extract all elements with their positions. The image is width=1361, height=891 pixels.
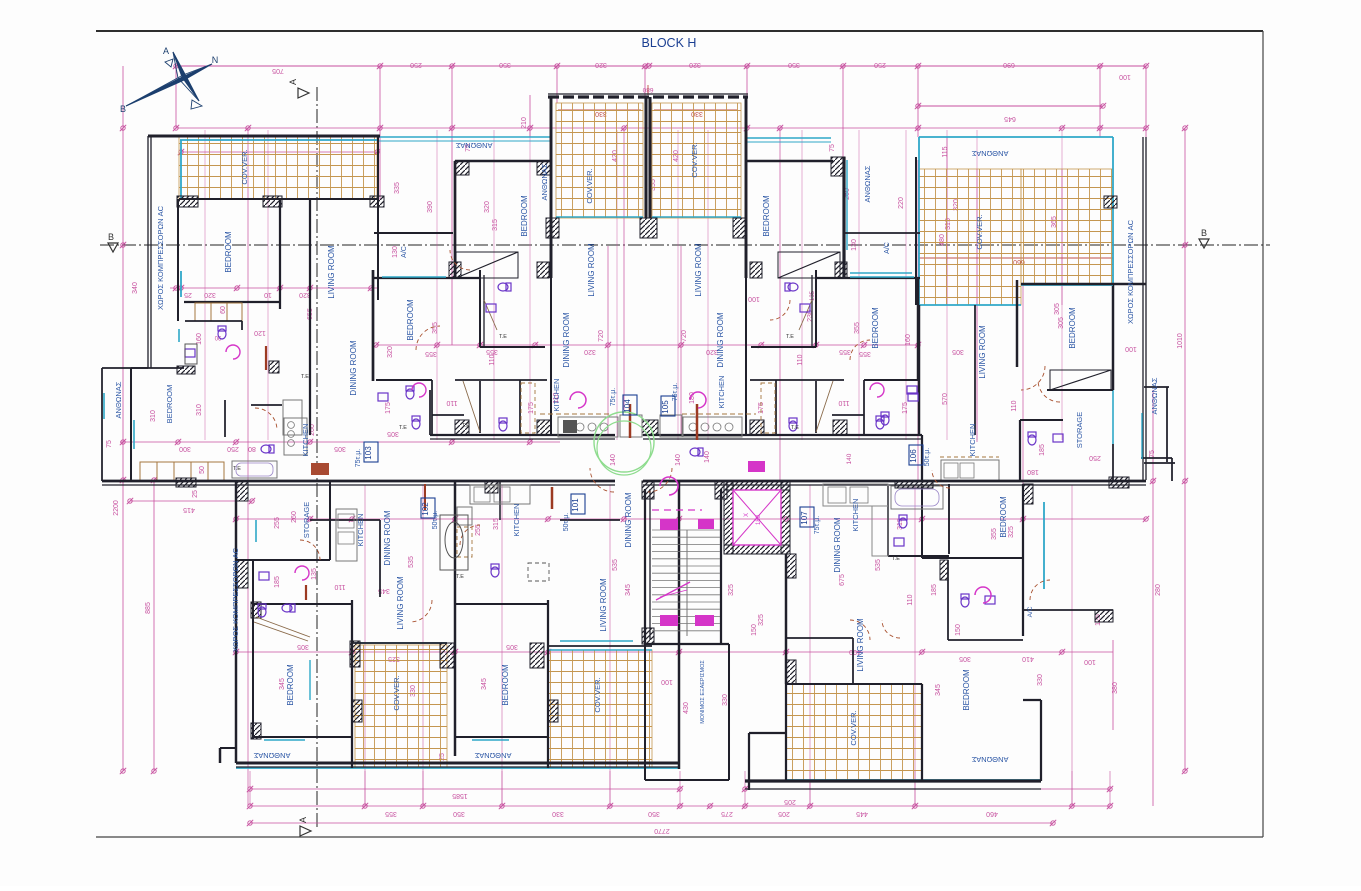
svg-text:300: 300 xyxy=(179,445,191,452)
svg-text:LIVING ROOM: LIVING ROOM xyxy=(327,245,336,299)
svg-text:130: 130 xyxy=(851,239,858,251)
svg-text:LIVING ROOM: LIVING ROOM xyxy=(978,325,987,379)
svg-text:570: 570 xyxy=(942,393,949,405)
svg-text:ΜΟΝΙΜΟΣ ΕΞΑΕΡΙΣΜΟΣ: ΜΟΝΙΜΟΣ ΕΞΑΕΡΙΣΜΟΣ xyxy=(700,660,706,724)
svg-text:T.E: T.E xyxy=(791,425,799,431)
svg-text:107: 107 xyxy=(800,511,809,525)
svg-text:535: 535 xyxy=(875,559,882,571)
svg-text:BEDROOM: BEDROOM xyxy=(520,195,529,237)
svg-text:LIVING ROOM: LIVING ROOM xyxy=(396,576,405,630)
svg-text:315: 315 xyxy=(493,518,500,530)
svg-text:A/C: A/C xyxy=(884,242,891,254)
svg-text:305: 305 xyxy=(1058,317,1065,329)
svg-text:COV.VER.: COV.VER. xyxy=(593,677,602,712)
svg-text:410: 410 xyxy=(1022,655,1034,662)
svg-text:103: 103 xyxy=(364,446,373,460)
svg-text:BEDROOM: BEDROOM xyxy=(406,299,415,341)
svg-text:310: 310 xyxy=(196,404,203,416)
svg-text:160: 160 xyxy=(196,333,203,345)
svg-text:325: 325 xyxy=(1008,526,1015,538)
svg-text:355: 355 xyxy=(385,810,397,817)
svg-text:140: 140 xyxy=(610,454,617,466)
svg-text:A/C: A/C xyxy=(401,246,408,258)
svg-text:25: 25 xyxy=(192,490,199,498)
svg-text:50τ.μ.: 50τ.μ. xyxy=(563,513,570,532)
svg-text:325: 325 xyxy=(758,614,765,626)
svg-text:COV.VER.: COV.VER. xyxy=(392,675,401,710)
svg-text:185: 185 xyxy=(931,584,938,596)
svg-text:25: 25 xyxy=(184,291,192,298)
svg-text:720: 720 xyxy=(598,330,605,342)
svg-text:102: 102 xyxy=(421,502,430,516)
svg-text:205: 205 xyxy=(778,810,790,817)
svg-text:75τ.μ.: 75τ.μ. xyxy=(610,388,617,407)
svg-text:115: 115 xyxy=(942,146,949,157)
svg-text:1010: 1010 xyxy=(1177,333,1184,349)
svg-text:350: 350 xyxy=(499,61,511,68)
svg-text:720: 720 xyxy=(681,330,688,342)
svg-text:DINING ROOM: DINING ROOM xyxy=(716,312,725,367)
svg-text:KITCHEN: KITCHEN xyxy=(552,379,561,412)
svg-text:280: 280 xyxy=(1155,584,1162,596)
svg-text:ΑΝΘΩΝΑΣ: ΑΝΘΩΝΑΣ xyxy=(474,751,511,760)
svg-text:A: A xyxy=(163,46,169,56)
svg-text:LIVING ROOM: LIVING ROOM xyxy=(587,243,596,297)
svg-text:COV.VER.: COV.VER. xyxy=(849,710,858,745)
svg-text:185: 185 xyxy=(1039,444,1046,456)
svg-text:A: A xyxy=(288,79,298,85)
svg-text:220: 220 xyxy=(898,197,905,209)
svg-text:106: 106 xyxy=(909,449,918,463)
svg-text:KITCHEN: KITCHEN xyxy=(851,499,860,532)
svg-text:305: 305 xyxy=(952,348,964,355)
svg-text:KITCHEN: KITCHEN xyxy=(512,504,521,537)
svg-text:205: 205 xyxy=(784,798,796,805)
svg-text:110: 110 xyxy=(797,354,804,365)
svg-text:ΑΝΘΩΝΑΣ: ΑΝΘΩΝΑΣ xyxy=(971,755,1008,764)
svg-text:LIVING ROOM: LIVING ROOM xyxy=(599,578,608,632)
svg-text:320: 320 xyxy=(387,346,394,358)
svg-text:ΑΝΘΩΝΑΣ: ΑΝΘΩΝΑΣ xyxy=(114,381,123,418)
svg-text:T.E: T.E xyxy=(456,574,464,580)
svg-text:N: N xyxy=(212,55,219,65)
svg-text:KITCHEN: KITCHEN xyxy=(356,514,365,547)
svg-text:175: 175 xyxy=(758,402,765,414)
svg-text:100: 100 xyxy=(1119,73,1131,80)
svg-text:50τ.μ.: 50τ.μ. xyxy=(432,511,439,530)
svg-text:KITCHEN: KITCHEN xyxy=(301,424,310,457)
svg-text:T.E: T.E xyxy=(462,423,470,429)
svg-text:185: 185 xyxy=(274,576,281,588)
svg-text:75: 75 xyxy=(106,440,113,448)
svg-text:350: 350 xyxy=(453,810,465,817)
svg-text:690: 690 xyxy=(1003,61,1015,68)
svg-text:180: 180 xyxy=(756,514,762,525)
svg-text:T.E: T.E xyxy=(233,466,241,472)
svg-text:LIVING ROOM: LIVING ROOM xyxy=(694,243,703,297)
svg-text:250: 250 xyxy=(1089,454,1101,461)
svg-text:BEDROOM: BEDROOM xyxy=(224,231,233,273)
svg-text:130: 130 xyxy=(392,246,399,258)
svg-text:COV.VER.: COV.VER. xyxy=(585,168,594,203)
svg-text:325: 325 xyxy=(728,584,735,596)
svg-text:345: 345 xyxy=(481,678,488,690)
svg-text:305: 305 xyxy=(506,643,518,650)
svg-text:T.E: T.E xyxy=(399,425,407,431)
svg-text:COV.VER.: COV.VER. xyxy=(690,142,699,177)
svg-text:2770: 2770 xyxy=(654,827,670,834)
svg-text:T.E: T.E xyxy=(786,334,794,340)
svg-text:175: 175 xyxy=(902,402,909,414)
svg-text:255: 255 xyxy=(475,524,482,536)
svg-text:104: 104 xyxy=(623,399,632,413)
svg-text:BEDROOM: BEDROOM xyxy=(871,307,880,349)
svg-text:320: 320 xyxy=(584,348,596,355)
svg-text:BEDROOM: BEDROOM xyxy=(501,664,510,706)
svg-text:355: 355 xyxy=(859,350,871,357)
svg-text:ΧΩΡΟΣ ΚΟΜΠΡΕΣΣΟΡΩΝ AC: ΧΩΡΟΣ ΚΟΜΠΡΕΣΣΟΡΩΝ AC xyxy=(231,547,240,652)
svg-text:DINING ROOM: DINING ROOM xyxy=(383,510,392,565)
svg-text:355: 355 xyxy=(432,322,439,334)
svg-text:A: A xyxy=(298,817,308,823)
svg-text:260: 260 xyxy=(291,511,298,523)
svg-text:B: B xyxy=(108,232,114,242)
svg-text:110: 110 xyxy=(334,583,345,590)
svg-text:175: 175 xyxy=(528,402,535,414)
svg-text:355: 355 xyxy=(854,322,861,334)
svg-text:330: 330 xyxy=(722,694,729,706)
svg-text:80: 80 xyxy=(248,445,256,452)
svg-text:330: 330 xyxy=(552,810,564,817)
svg-text:140: 140 xyxy=(675,454,682,466)
svg-text:355: 355 xyxy=(991,528,998,540)
svg-text:100: 100 xyxy=(1125,345,1137,352)
svg-text:150: 150 xyxy=(751,624,758,636)
svg-text:110: 110 xyxy=(446,399,457,406)
svg-text:345: 345 xyxy=(625,584,632,596)
svg-text:340: 340 xyxy=(132,282,139,294)
svg-text:305: 305 xyxy=(334,445,346,452)
svg-text:305: 305 xyxy=(1054,303,1061,315)
svg-text:STORAGE: STORAGE xyxy=(1075,412,1084,449)
svg-text:535: 535 xyxy=(408,556,415,568)
svg-text:75: 75 xyxy=(829,144,836,152)
svg-text:LIVING ROOM: LIVING ROOM xyxy=(856,618,865,672)
svg-text:ΑΝΘΩΝΑΣ: ΑΝΘΩΝΑΣ xyxy=(971,149,1008,158)
svg-text:STORAGE: STORAGE xyxy=(302,502,311,539)
svg-text:DINING ROOM: DINING ROOM xyxy=(562,312,571,367)
svg-text:110: 110 xyxy=(1011,400,1018,411)
svg-text:DINING ROOM: DINING ROOM xyxy=(349,340,358,395)
svg-text:BEDROOM: BEDROOM xyxy=(1068,307,1077,349)
svg-text:75τ.μ.: 75τ.μ. xyxy=(672,383,679,402)
svg-text:320: 320 xyxy=(689,61,701,68)
svg-text:140: 140 xyxy=(704,451,711,463)
svg-text:350: 350 xyxy=(788,61,800,68)
svg-text:ΑΝΘΩΝΑΣ: ΑΝΘΩΝΑΣ xyxy=(540,163,549,200)
svg-text:101: 101 xyxy=(571,498,580,512)
svg-text:250: 250 xyxy=(227,445,239,452)
svg-text:75: 75 xyxy=(1149,450,1156,458)
svg-text:305: 305 xyxy=(959,655,971,662)
svg-text:390: 390 xyxy=(427,201,434,213)
svg-text:355: 355 xyxy=(486,348,498,355)
svg-text:415: 415 xyxy=(183,506,195,513)
svg-text:210: 210 xyxy=(521,117,528,129)
svg-text:100: 100 xyxy=(1084,658,1096,665)
svg-text:675: 675 xyxy=(839,574,846,586)
svg-text:BLOCK H: BLOCK H xyxy=(642,36,697,50)
svg-text:110: 110 xyxy=(838,399,849,406)
svg-text:310: 310 xyxy=(150,410,157,422)
svg-text:KITCHEN: KITCHEN xyxy=(968,424,977,457)
svg-text:B: B xyxy=(120,104,126,114)
svg-text:330: 330 xyxy=(1037,674,1044,686)
svg-text:A/C: A/C xyxy=(1027,606,1034,617)
svg-text:445: 445 xyxy=(856,810,868,817)
svg-text:430: 430 xyxy=(683,702,690,714)
svg-text:105: 105 xyxy=(661,400,670,414)
svg-text:50: 50 xyxy=(199,466,206,474)
svg-text:320: 320 xyxy=(484,201,491,213)
svg-text:ΑΝΘΩΝΑΣ: ΑΝΘΩΝΑΣ xyxy=(253,751,290,760)
svg-text:345: 345 xyxy=(935,684,942,696)
svg-text:355: 355 xyxy=(839,348,851,355)
svg-text:645: 645 xyxy=(1004,115,1016,122)
svg-text:100: 100 xyxy=(748,295,760,302)
svg-text:BEDROOM: BEDROOM xyxy=(962,669,971,711)
svg-text:305: 305 xyxy=(297,643,309,650)
svg-text:315: 315 xyxy=(492,219,499,231)
svg-text:T.E: T.E xyxy=(499,334,507,340)
svg-text:X: X xyxy=(744,513,750,517)
svg-text:100: 100 xyxy=(661,678,673,685)
svg-text:ΑΝΘΩΝΑΣ: ΑΝΘΩΝΑΣ xyxy=(863,165,872,202)
svg-text:1585: 1585 xyxy=(452,792,468,799)
svg-text:2200: 2200 xyxy=(113,500,120,516)
svg-text:T.E: T.E xyxy=(892,556,900,562)
svg-text:320: 320 xyxy=(204,291,216,298)
svg-text:BEDROOM: BEDROOM xyxy=(286,664,295,706)
svg-text:150: 150 xyxy=(955,624,962,636)
svg-text:345: 345 xyxy=(279,678,286,690)
svg-text:350: 350 xyxy=(648,810,660,817)
svg-text:135: 135 xyxy=(311,568,318,580)
svg-text:COV.VER.: COV.VER. xyxy=(240,149,249,184)
svg-text:140: 140 xyxy=(846,453,853,464)
svg-text:B: B xyxy=(1201,228,1207,238)
svg-text:50τ.μ.: 50τ.μ. xyxy=(924,448,931,467)
svg-text:335: 335 xyxy=(394,182,401,194)
svg-text:DINING ROOM: DINING ROOM xyxy=(833,517,842,572)
svg-text:275: 275 xyxy=(721,810,733,817)
svg-text:120: 120 xyxy=(254,329,266,336)
svg-text:705: 705 xyxy=(272,67,284,74)
svg-text:110: 110 xyxy=(489,354,496,365)
svg-text:COV.VER.: COV.VER. xyxy=(975,214,984,249)
svg-text:535: 535 xyxy=(612,559,619,571)
svg-text:BEDROOM: BEDROOM xyxy=(762,195,771,237)
svg-text:BEDROOM: BEDROOM xyxy=(165,385,174,424)
svg-text:250: 250 xyxy=(874,61,886,68)
svg-text:320: 320 xyxy=(595,61,607,68)
svg-text:180: 180 xyxy=(1027,468,1039,475)
svg-text:175: 175 xyxy=(385,402,392,414)
svg-text:250: 250 xyxy=(410,61,422,68)
svg-text:60: 60 xyxy=(220,306,227,314)
svg-text:KITCHEN: KITCHEN xyxy=(717,376,726,409)
svg-text:75τ.μ.: 75τ.μ. xyxy=(355,449,362,468)
svg-text:T.E: T.E xyxy=(301,374,309,380)
svg-text:ΑΝΘΩΝΑΣ: ΑΝΘΩΝΑΣ xyxy=(1150,377,1159,414)
svg-text:460: 460 xyxy=(986,810,998,817)
svg-text:DINING ROOM: DINING ROOM xyxy=(624,492,633,547)
svg-text:ΧΩΡΟΣ ΚΟΜΠΡΕΣΣΟΡΩΝ AC: ΧΩΡΟΣ ΚΟΜΠΡΕΣΣΟΡΩΝ AC xyxy=(1126,219,1135,324)
svg-text:ΧΩΡΟΣ ΚΟΜΠΡΕΣΣΟΡΩΝ AC: ΧΩΡΟΣ ΚΟΜΠΡΕΣΣΟΡΩΝ AC xyxy=(156,205,165,310)
svg-text:ΑΝΘΩΝΑΣ: ΑΝΘΩΝΑΣ xyxy=(455,141,492,150)
svg-text:305: 305 xyxy=(387,430,399,437)
svg-text:BEDROOM: BEDROOM xyxy=(999,496,1008,538)
svg-text:255: 255 xyxy=(274,517,281,529)
svg-text:355: 355 xyxy=(425,350,437,357)
svg-text:110: 110 xyxy=(907,594,914,605)
svg-text:885: 885 xyxy=(145,602,152,614)
svg-text:75τ.μ.: 75τ.μ. xyxy=(814,516,821,535)
